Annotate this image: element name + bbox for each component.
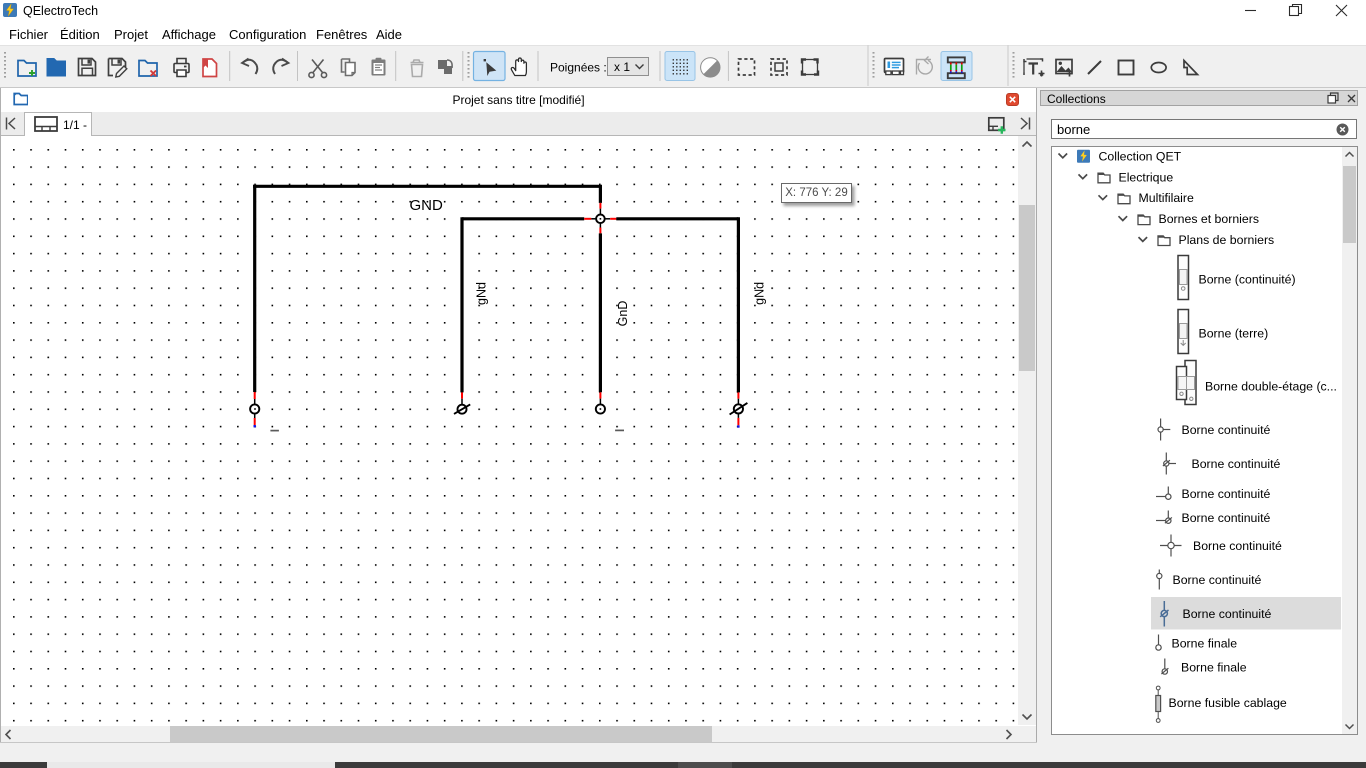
svg-text:GND: GND xyxy=(410,197,444,214)
svg-text:Collection QET: Collection QET xyxy=(1098,149,1181,163)
svg-text:Borne continuité: Borne continuité xyxy=(1172,573,1261,587)
svg-text:Borne continuité: Borne continuité xyxy=(1191,457,1280,471)
svg-text:Borne continuité: Borne continuité xyxy=(1181,487,1270,501)
svg-text:gNd: gNd xyxy=(474,282,488,305)
svg-text:Borne continuité: Borne continuité xyxy=(1182,607,1271,621)
svg-text:Borne finale: Borne finale xyxy=(1171,637,1237,651)
svg-text:Borne fusible cablage: Borne fusible cablage xyxy=(1168,696,1286,710)
svg-text:gNd: gNd xyxy=(752,282,766,305)
svg-text:Borne continuité: Borne continuité xyxy=(1193,539,1282,553)
svg-text:Borne double-étage (c...: Borne double-étage (c... xyxy=(1205,380,1337,394)
svg-text:GnD: GnD xyxy=(616,301,630,327)
svg-text:Poignées :: Poignées : xyxy=(550,61,607,75)
svg-text:Multifilaire: Multifilaire xyxy=(1138,191,1194,205)
svg-text:Plans de borniers: Plans de borniers xyxy=(1178,233,1274,247)
svg-text:Borne (continuité): Borne (continuité) xyxy=(1198,273,1295,287)
svg-text:x 1: x 1 xyxy=(614,60,630,74)
svg-text:Borne (terre): Borne (terre) xyxy=(1198,327,1268,341)
svg-text:Borne continuité: Borne continuité xyxy=(1181,511,1270,525)
svg-text:Bornes et borniers: Bornes et borniers xyxy=(1158,212,1258,226)
svg-text:Borne finale: Borne finale xyxy=(1181,661,1247,675)
svg-text:Borne continuité: Borne continuité xyxy=(1181,423,1270,437)
svg-text:Electrique: Electrique xyxy=(1118,170,1173,184)
